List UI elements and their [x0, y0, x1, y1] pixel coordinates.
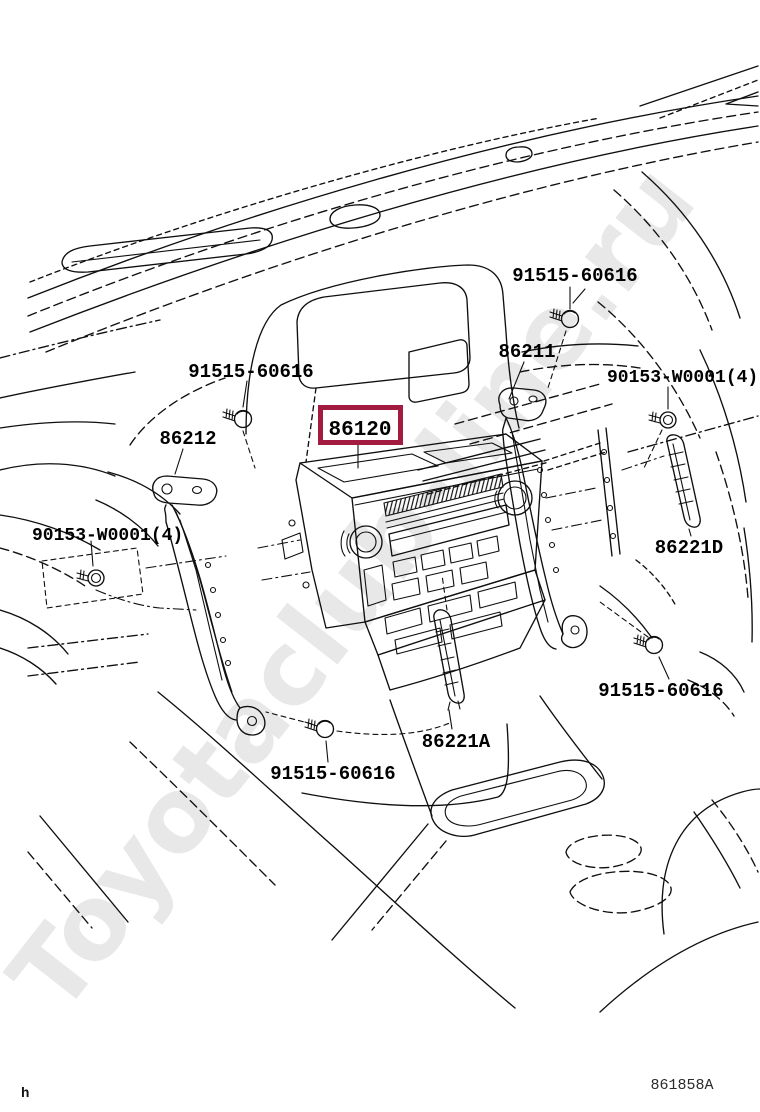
label-91515-60616-top[interactable]: 91515-60616 [512, 265, 637, 287]
screw-lower-right-icon [634, 635, 663, 654]
label-91515-60616-upper-left[interactable]: 91515-60616 [188, 361, 313, 383]
label-86211[interactable]: 86211 [498, 341, 555, 363]
label-86221a[interactable]: 86221A [422, 731, 491, 753]
diagram-code: 861858A [650, 1077, 713, 1094]
screw-upper-left-icon [223, 409, 252, 428]
label-86221d[interactable]: 86221D [655, 537, 723, 559]
parts-diagram-canvas: Toyotaclub-line.ru [0, 0, 760, 1112]
corner-mark: h [21, 1086, 29, 1102]
label-91515-60616-lower-left[interactable]: 91515-60616 [270, 763, 395, 785]
garnish-right-drawing [667, 435, 700, 527]
label-91515-60616-lower-right[interactable]: 91515-60616 [598, 680, 723, 702]
label-90153-w0001-left[interactable]: 90153-W0001(4) [32, 526, 183, 546]
garnish-center-drawing [434, 610, 464, 710]
bolt-right-icon [649, 412, 676, 428]
label-86120[interactable]: 86120 [328, 419, 391, 442]
parts-diagram-page: Toyotaclub-line.ru [0, 0, 760, 1112]
label-90153-w0001-right[interactable]: 90153-W0001(4) [607, 368, 758, 388]
label-86212[interactable]: 86212 [159, 428, 216, 450]
